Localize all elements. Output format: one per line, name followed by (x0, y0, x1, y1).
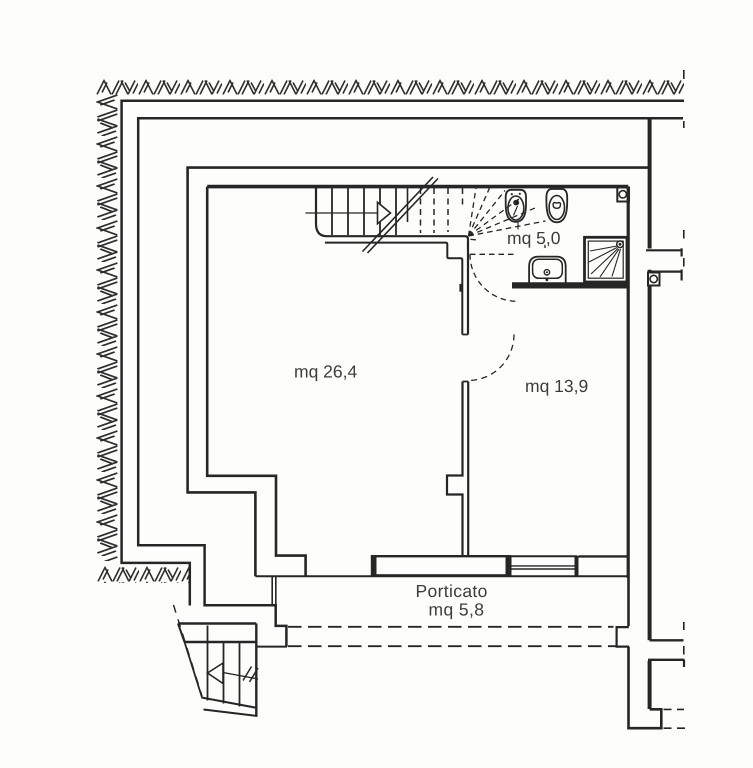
svg-text:mq 13,9: mq 13,9 (525, 376, 588, 396)
svg-text:mq 5,8: mq 5,8 (429, 600, 485, 620)
svg-text:mq 26,4: mq 26,4 (294, 362, 357, 382)
svg-text:mq 5,0: mq 5,0 (507, 228, 561, 248)
svg-text:Porticato: Porticato (416, 581, 488, 601)
